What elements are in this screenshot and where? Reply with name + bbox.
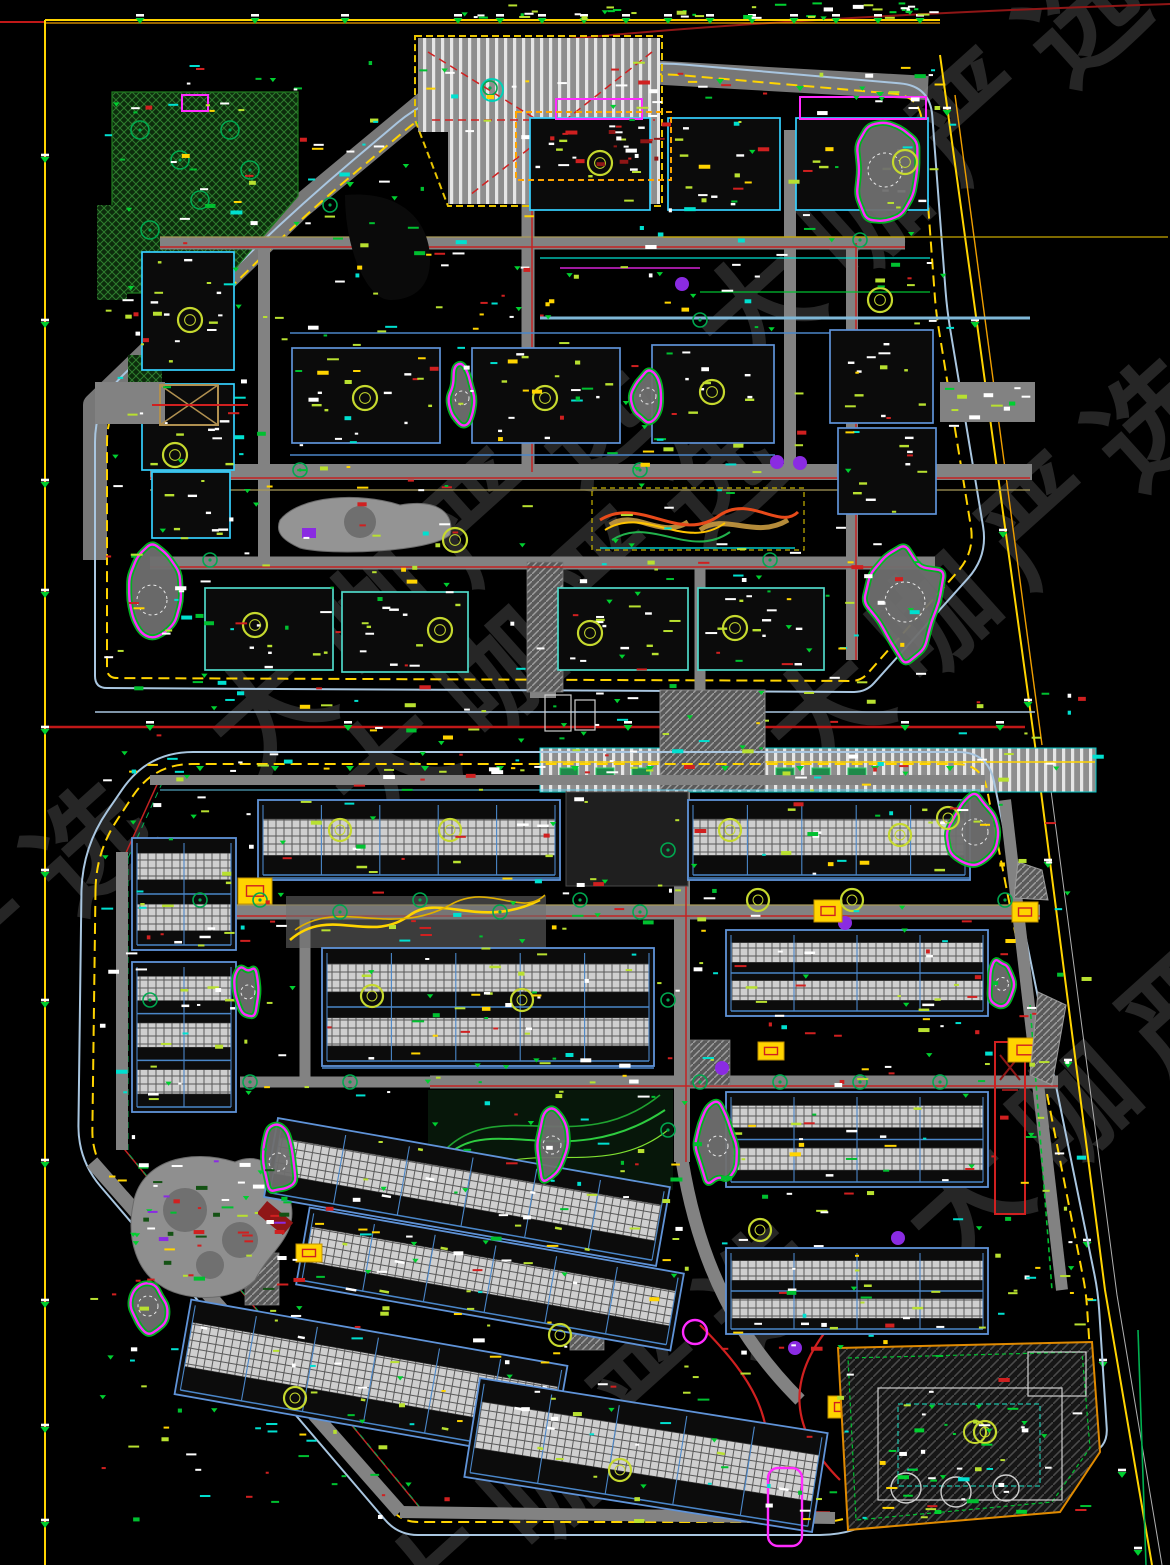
building-outline [698, 588, 824, 670]
building-outline [292, 348, 440, 443]
building-outline [558, 588, 688, 670]
pond [857, 123, 917, 221]
building-cluster [726, 1248, 988, 1334]
building-outline [142, 252, 234, 370]
building-cluster [726, 1092, 988, 1187]
pond [234, 967, 258, 1016]
pond [263, 1125, 295, 1191]
building-cluster [258, 800, 560, 880]
building-cluster [132, 838, 236, 950]
building-outline [342, 592, 468, 672]
building-outline [668, 118, 780, 210]
site-plan-drawing: 大咖严选大咖严选大咖严选大咖严选大咖严选大咖严选大咖严选 [0, 0, 1170, 1565]
building-outline [205, 588, 333, 670]
cad-viewport: 大咖严选大咖严选大咖严选大咖严选大咖严选大咖严选大咖严选 [0, 0, 1170, 1565]
building-cluster [132, 962, 236, 1112]
building-outline [152, 472, 230, 538]
drawing-layers: 大咖严选大咖严选大咖严选大咖严选大咖严选大咖严选大咖严选 [0, 0, 1170, 1565]
building-outline [652, 345, 774, 443]
pond [129, 544, 181, 637]
building-outline [530, 118, 650, 210]
building-outline [830, 330, 933, 423]
pond [449, 364, 475, 426]
building-cluster [726, 930, 988, 1016]
